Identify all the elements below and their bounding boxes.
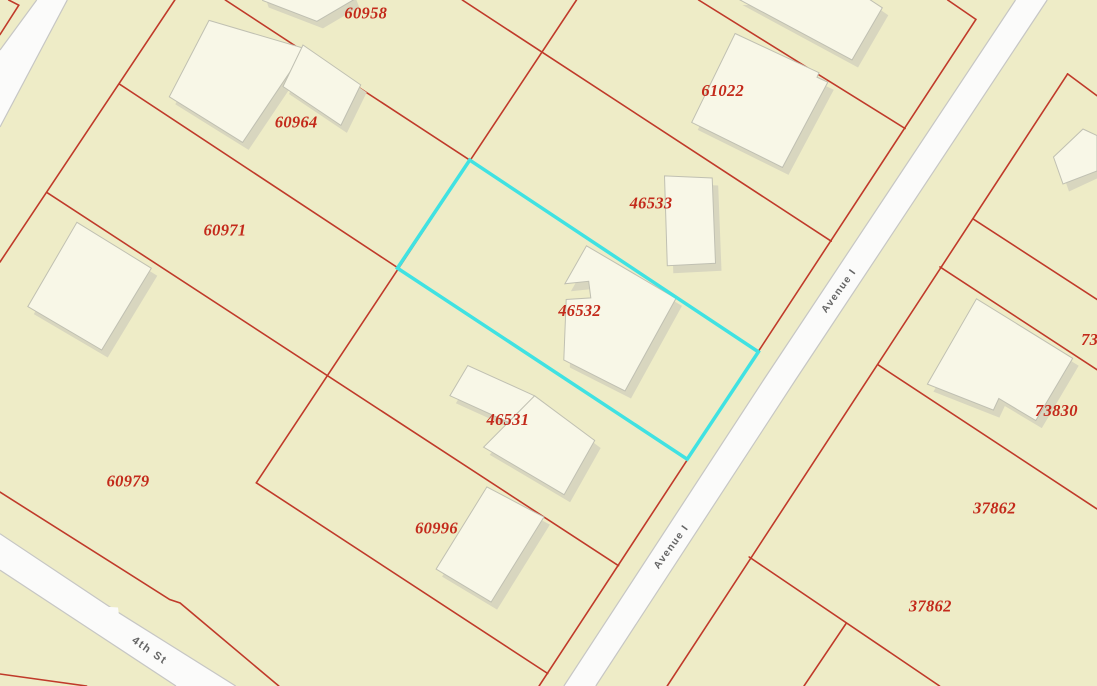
svg-text:37862: 37862	[908, 597, 952, 616]
svg-text:73830: 73830	[1081, 330, 1097, 349]
svg-text:46532: 46532	[557, 301, 601, 320]
svg-text:61022: 61022	[701, 81, 744, 100]
svg-text:37862: 37862	[972, 499, 1016, 518]
svg-text:60996: 60996	[415, 518, 458, 537]
svg-text:60964: 60964	[275, 113, 318, 132]
svg-text:46531: 46531	[486, 410, 530, 429]
svg-text:46533: 46533	[629, 194, 673, 213]
svg-text:73830: 73830	[1035, 401, 1078, 420]
svg-text:60971: 60971	[204, 220, 247, 239]
svg-text:60958: 60958	[344, 4, 387, 23]
svg-text:60979: 60979	[107, 471, 150, 490]
